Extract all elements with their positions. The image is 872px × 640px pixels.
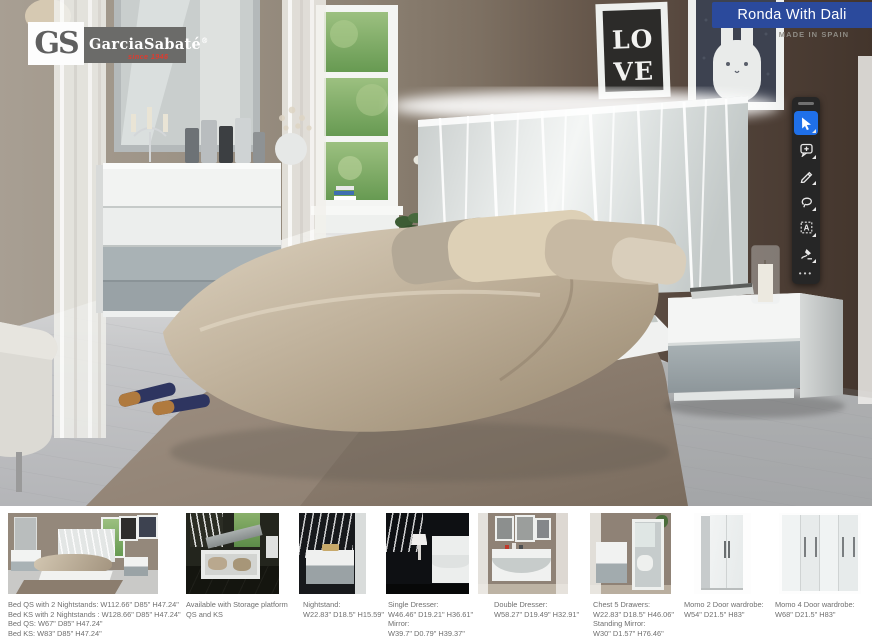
thumbnail-bed — [8, 513, 158, 594]
cursor-icon — [799, 116, 814, 131]
annotation-toolbar[interactable]: A ••• — [792, 97, 820, 284]
caption-double-dresser: Double Dresser: W58.27" D19.49" H32.91" — [494, 600, 579, 619]
caption-line: Bed QS with 2 Nightstands: W112.66" D85"… — [8, 600, 181, 610]
text-select-button[interactable]: A — [794, 215, 818, 239]
add-comment-icon — [799, 142, 814, 157]
bedroom-scene: LO VE — [0, 0, 872, 506]
right-curtain — [858, 56, 872, 404]
caption-line: Bed KS: W83" D85" H47.24" — [8, 629, 181, 639]
page: LO VE — [0, 0, 872, 640]
registered-mark: ® — [201, 36, 208, 45]
logo-since: since 1946 — [128, 54, 168, 61]
hurricane-candle — [752, 246, 779, 303]
thumbnail-double-dresser — [478, 513, 568, 594]
caption-line: Momo 4 Door wardrobe: — [775, 600, 855, 610]
caption-line: W39.7" D0.79" H39.37" — [388, 629, 473, 639]
caption-chest: Chest 5 Drawers: W22.83" D18.5" H46.06" … — [593, 600, 674, 638]
toolbar-drag-handle[interactable] — [798, 102, 814, 105]
love-poster: LO VE — [595, 2, 670, 99]
brand-logo: GS GarciaSabaté® since 1946 — [28, 22, 188, 66]
stamp-icon — [799, 246, 814, 261]
brand-text: GarciaSabaté — [89, 36, 201, 53]
lasso-button[interactable] — [794, 189, 818, 213]
caption-line: Single Dresser: — [388, 600, 473, 610]
thumbnail-wardrobe-2door — [694, 513, 751, 594]
caption-line: W58.27" D19.49" H32.91" — [494, 610, 579, 620]
caption-line: Double Dresser: — [494, 600, 579, 610]
caption-line: Mirror: — [388, 619, 473, 629]
nightstand — [668, 293, 843, 401]
caption-line: W22.83" D18.5" H46.06" — [593, 610, 674, 620]
thumbnail-storage-bed — [186, 513, 279, 594]
collection-title-banner: Ronda With Dali — [712, 2, 872, 28]
caption-line: W22.83" D18.5" H15.59" — [303, 610, 384, 620]
love-line1: LO — [611, 24, 653, 54]
pen-icon — [799, 168, 814, 183]
books-on-sill — [334, 186, 356, 200]
thumbnail-single-dresser — [386, 513, 469, 594]
catalog-photo: LO VE — [0, 0, 872, 506]
caption-line: W30" D1.57" H76.46" — [593, 629, 674, 639]
caption-line: Standing Mirror: — [593, 619, 674, 629]
caption-nightstand: Nightstand: W22.83" D18.5" H15.59" — [303, 600, 384, 619]
caption-wardrobe-2door: Momo 2 Door wardrobe: W54" D21.5" H83" — [684, 600, 764, 619]
svg-text:A: A — [803, 223, 809, 232]
caption-single-dresser: Single Dresser: W46.46" D19.21" H36.61" … — [388, 600, 473, 638]
add-comment-button[interactable] — [794, 137, 818, 161]
lasso-icon — [799, 194, 814, 209]
caption-line: W46.46" D19.21" H36.61" — [388, 610, 473, 620]
caption-bed: Bed QS with 2 Nightstands: W112.66" D85"… — [8, 600, 181, 638]
caption-line: Chest 5 Drawers: — [593, 600, 674, 610]
caption-line: W68" D21.5" H83" — [775, 610, 855, 620]
logo-brand-name: GarciaSabaté® — [89, 36, 208, 53]
made-in-label: MADE IN SPAIN — [766, 30, 862, 39]
caption-line: W54" D21.5" H83" — [684, 610, 764, 620]
toolbar-more-button[interactable]: ••• — [799, 270, 813, 278]
caption-line: Available with Storage platform — [186, 600, 288, 610]
love-line2: VE — [612, 56, 654, 86]
caption-line: Momo 2 Door wardrobe: — [684, 600, 764, 610]
caption-line: Bed KS with 2 Nightstands : W128.66" D85… — [8, 610, 181, 620]
caption-line: Nightstand: — [303, 600, 384, 610]
caption-line: Bed QS: W67" D85" H47.24" — [8, 619, 181, 629]
caption-storage-bed: Available with Storage platform QS and K… — [186, 600, 288, 619]
bed-shadow — [170, 422, 670, 482]
stamp-button[interactable] — [794, 241, 818, 265]
caption-line: QS and KS — [186, 610, 288, 620]
pen-button[interactable] — [794, 163, 818, 187]
thumbnail-wardrobe-4door — [779, 513, 861, 594]
text-select-icon: A — [799, 220, 814, 235]
caption-wardrobe-4door: Momo 4 Door wardrobe: W68" D21.5" H83" — [775, 600, 855, 619]
logo-gs-monogram: GS — [28, 22, 84, 65]
select-cursor-button[interactable] — [794, 111, 818, 135]
thumbnail-nightstand — [299, 513, 366, 594]
thumbnail-chest-mirror — [590, 513, 671, 594]
